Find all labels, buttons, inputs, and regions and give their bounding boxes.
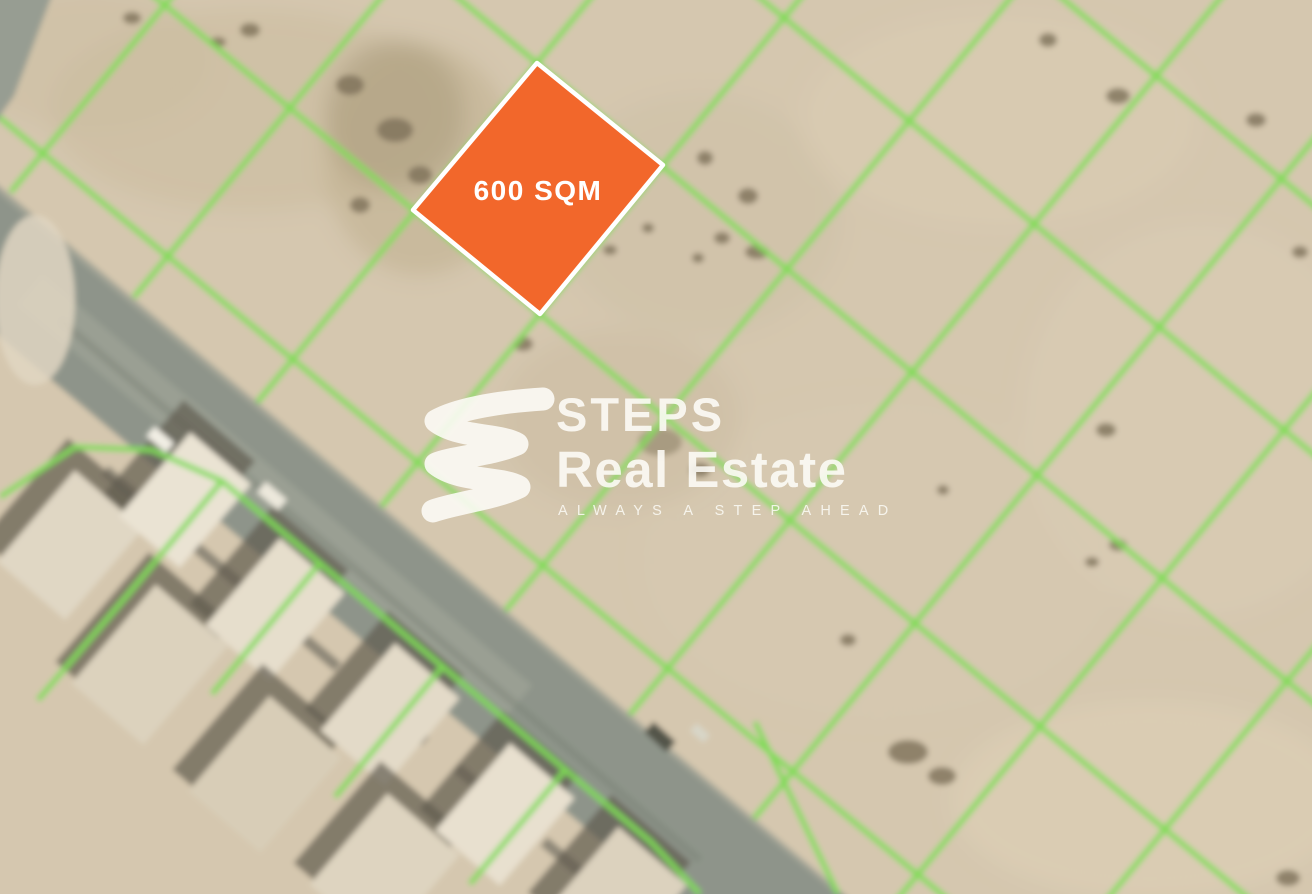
brand-name-real-estate: Real Estate	[556, 441, 847, 498]
brand-tagline: ALWAYS A STEP AHEAD	[558, 503, 897, 519]
plot-area-label: 600 SQM	[474, 175, 603, 206]
listing-map-image: 600 SQM STEPS Real Estate ALWAYS A STEP …	[0, 0, 1312, 894]
satellite-map: 600 SQM STEPS Real Estate ALWAYS A STEP …	[0, 0, 1312, 894]
brand-name-steps: STEPS	[556, 388, 725, 441]
